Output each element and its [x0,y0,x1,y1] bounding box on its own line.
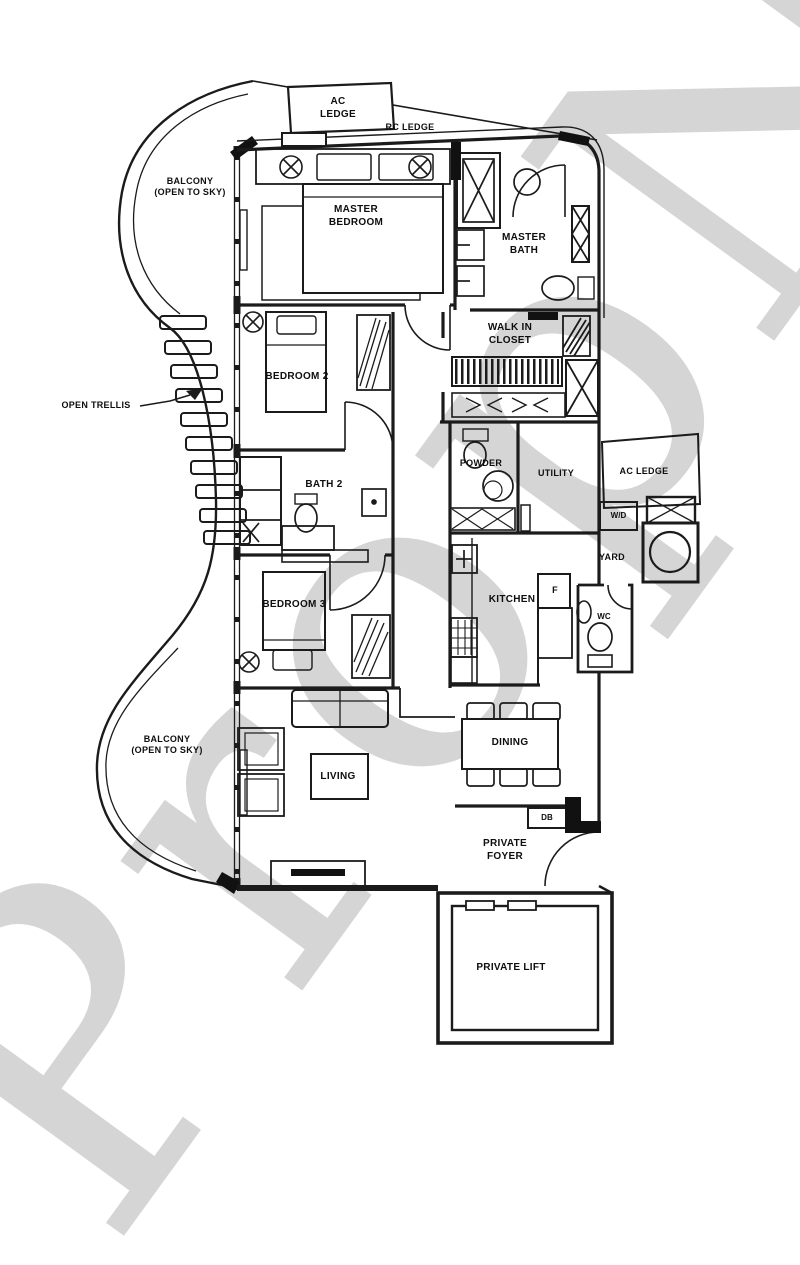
label-kitchen: KITCHEN [472,594,552,607]
label-balcony-top: BALCONY (OPEN TO SKY) [130,176,250,199]
floor-plan: PropNex [0,0,800,1265]
label-bedroom-2: BEDROOM 2 [247,371,347,384]
label-balcony-bottom: BALCONY (OPEN TO SKY) [107,734,227,757]
label-private-foyer: PRIVATE FOYER [465,838,545,863]
label-open-trellis: OPEN TRELLIS [46,400,146,411]
label-ac-ledge-top: AC LEDGE [293,96,383,121]
label-living: LIVING [308,771,368,784]
label-bath-2: BATH 2 [284,479,364,492]
label-walk-in-closet: WALK IN CLOSET [470,322,550,347]
label-wd: W/D [600,511,637,521]
label-rc-ledge: RC LEDGE [370,122,450,133]
label-bedroom-3: BEDROOM 3 [244,599,344,612]
label-utility: UTILITY [521,468,591,479]
label-yard: YARD [587,552,637,563]
label-private-lift: PRIVATE LIFT [461,962,561,975]
label-fridge: F [545,585,565,596]
label-master-bath: MASTER BATH [484,232,564,257]
label-powder: POWDER [446,458,516,469]
label-dining: DINING [480,737,540,750]
label-wc: WC [590,612,618,622]
label-master-bedroom: MASTER BEDROOM [306,204,406,229]
floor-plan-svg: PropNex [0,0,800,1265]
label-db: DB [532,813,562,823]
label-ac-ledge-right: AC LEDGE [604,466,684,477]
